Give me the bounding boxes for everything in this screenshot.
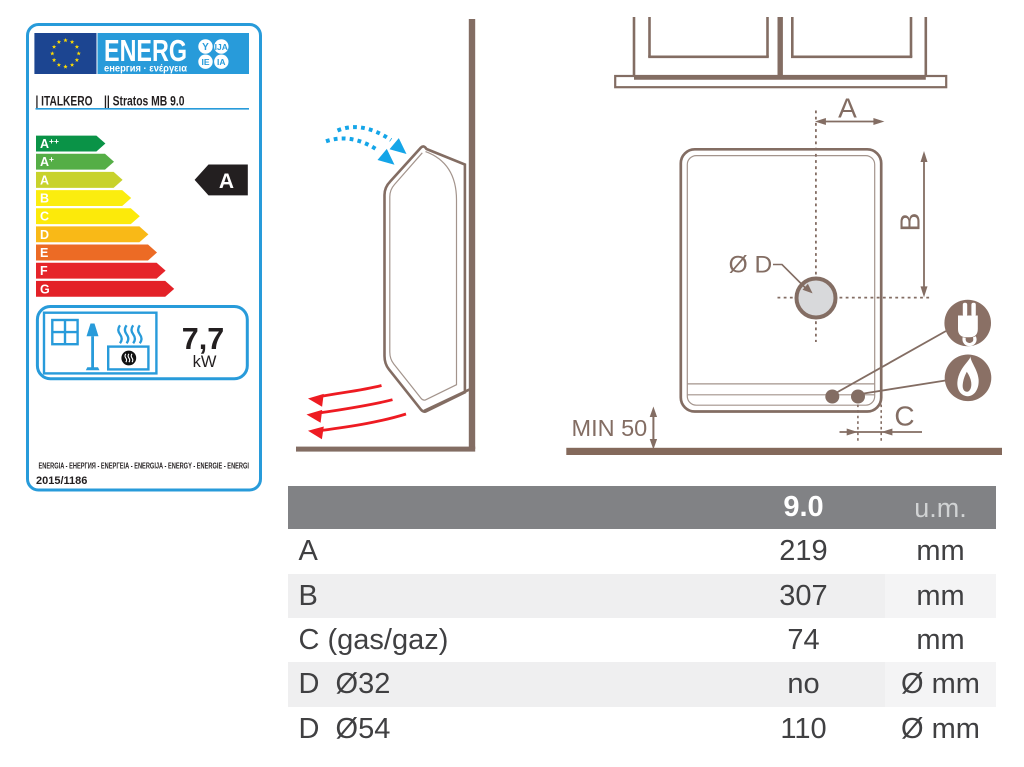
svg-text:F: F [40, 264, 48, 278]
svg-text:IA: IA [217, 57, 226, 67]
svg-text:B: B [40, 192, 49, 206]
svg-text:A: A [838, 93, 857, 124]
svg-text:A: A [219, 170, 234, 193]
svg-text:ENERGIA - ЕНЕРГИЯ - ΕΝΕΡΓΕΙΑ -: ENERGIA - ЕНЕРГИЯ - ΕΝΕΡΓΕΙΑ - ENERGIJA … [39, 462, 250, 471]
svg-text:Ø D: Ø D [729, 251, 773, 278]
svg-text:Y: Y [202, 42, 209, 53]
svg-text:C: C [894, 401, 914, 432]
svg-text:C: C [40, 210, 49, 224]
svg-text:G: G [40, 282, 50, 296]
svg-text:A: A [40, 173, 49, 187]
svg-text:MIN 50: MIN 50 [572, 415, 648, 441]
svg-text:kW: kW [193, 353, 217, 371]
svg-text:D: D [40, 228, 49, 242]
svg-text:енергия · ενέργεια: енергия · ενέργεια [104, 63, 187, 75]
svg-text:2015/1186: 2015/1186 [36, 475, 87, 487]
svg-text:7,7: 7,7 [182, 322, 224, 356]
svg-text:| ITALKERO: | ITALKERO [36, 94, 93, 109]
svg-text:|| Stratos MB 9.0: || Stratos MB 9.0 [104, 94, 185, 109]
svg-text:E: E [40, 246, 48, 260]
svg-text:IE: IE [201, 57, 209, 67]
svg-text:IJA: IJA [215, 42, 228, 52]
svg-text:B: B [895, 213, 926, 232]
